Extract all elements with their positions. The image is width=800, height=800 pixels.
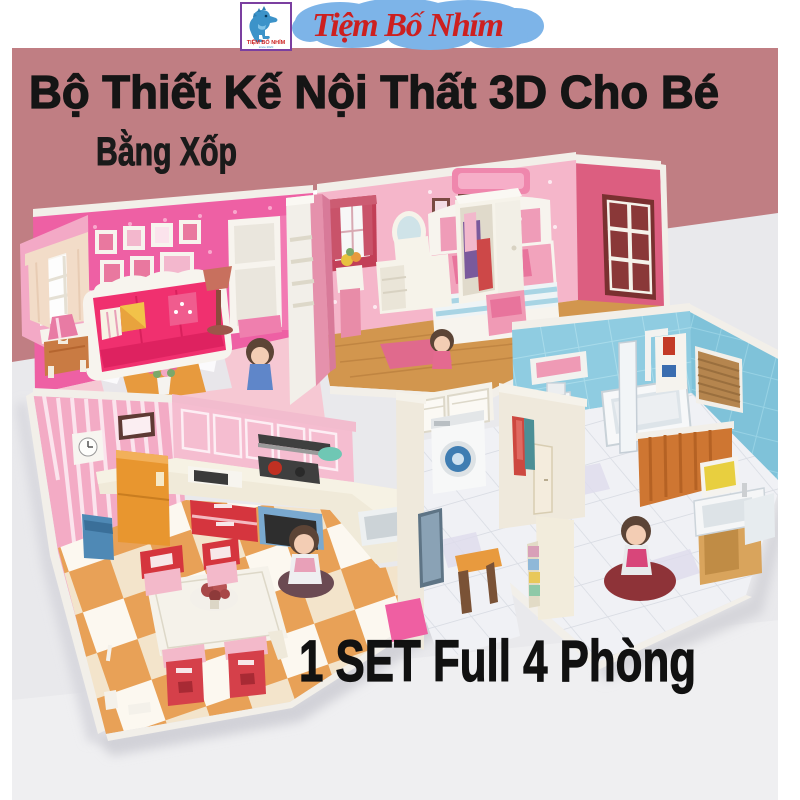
svg-text:Bộ Thiết Kế Nội Thất 3D Cho Bé: Bộ Thiết Kế Nội Thất 3D Cho Bé — [29, 66, 719, 118]
svg-text:Tiệm Bố Nhím: Tiệm Bố Nhím — [312, 7, 504, 44]
svg-text:Bằng Xốp: Bằng Xốp — [96, 128, 237, 174]
svg-text:since 2020: since 2020 — [259, 45, 274, 49]
svg-text:1 SET Full 4 Phòng: 1 SET Full 4 Phòng — [299, 629, 696, 694]
